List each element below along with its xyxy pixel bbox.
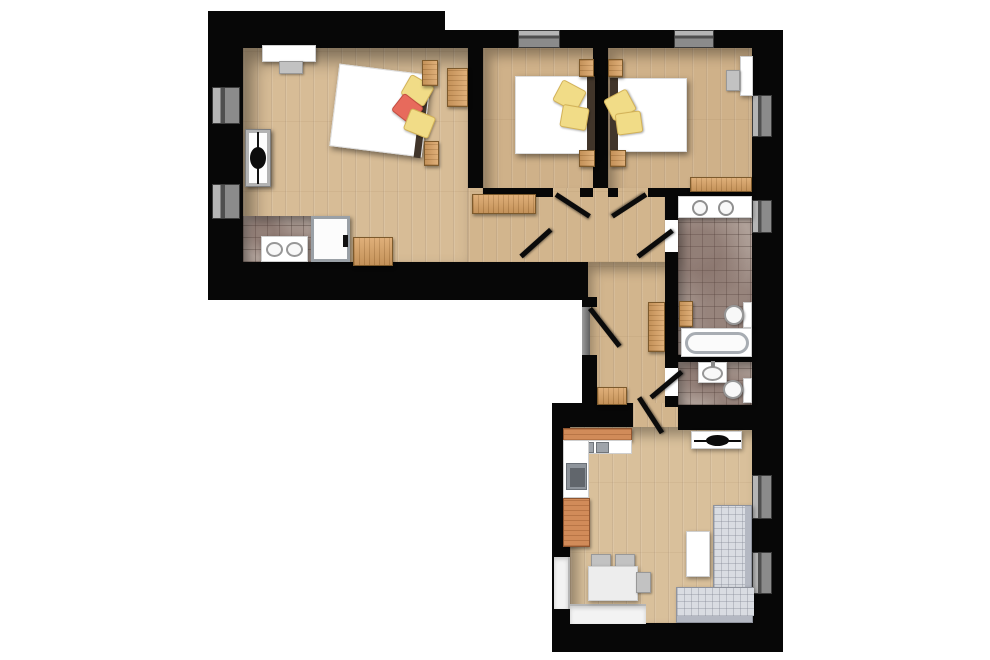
cooktop-burner-2	[596, 442, 609, 453]
wall-bottom-upper-wing	[208, 262, 588, 300]
nightstand-left-top	[422, 60, 438, 86]
wall-bathroom-left-b	[665, 252, 678, 362]
pillow-right-2	[615, 110, 644, 135]
bathtub	[685, 332, 749, 354]
pillow-middle-2	[559, 104, 590, 131]
sofa-right-section	[713, 505, 752, 598]
wall-divider-left-middle	[468, 30, 483, 188]
desk-right-bedroom	[740, 56, 753, 96]
desk-left-bedroom	[262, 45, 316, 62]
entrance-threshold	[582, 307, 590, 355]
nightstand-middle-bottom	[579, 150, 595, 167]
kitchen-sink-basin	[570, 468, 585, 487]
fireplace-stove-living	[691, 431, 742, 449]
wall-top-left	[208, 11, 445, 48]
window-right-living-lower	[752, 552, 772, 594]
shower-cabin	[311, 216, 350, 262]
wall-bedroom-right-bottom-a	[608, 188, 618, 197]
sink-main-2	[718, 200, 734, 216]
wood-stove-left-bedroom	[245, 129, 271, 187]
sink-ensuite-2	[286, 242, 303, 257]
nightstand-right-bottom	[610, 150, 626, 167]
window-left-lower	[212, 184, 240, 219]
window-left-upper	[212, 87, 240, 124]
wall-bathroom-left-a	[665, 196, 678, 220]
toilet-wc-tank	[743, 378, 752, 403]
wall-living-bottom	[552, 623, 783, 652]
wall-corridor-left-a	[582, 297, 597, 307]
cabinet-corridor-tall	[648, 302, 665, 352]
sofa-bottom-section	[676, 587, 753, 623]
dining-chair-3	[636, 572, 651, 593]
vanity-main-bathroom	[678, 196, 752, 218]
wall-corridor-left-b	[582, 355, 597, 407]
wall-bedroom-middle-bottom-stub	[580, 188, 593, 197]
sink-ensuite-1	[266, 242, 283, 257]
fireplace-lens	[706, 435, 729, 446]
dining-table	[588, 566, 638, 601]
kitchen-counter-left	[563, 498, 590, 547]
cabinet-ensuite	[353, 237, 393, 266]
wall-divider-middle-right	[593, 48, 608, 188]
desk-chair-right-bedroom	[726, 70, 740, 91]
kitchen-worktop-left	[563, 440, 589, 498]
shower-door-hinge	[343, 235, 348, 247]
wardrobe-left-bedroom	[447, 68, 468, 107]
sofa-right-seat	[714, 506, 745, 599]
window-bottom-dining	[570, 604, 646, 624]
cabinet-corridor-low	[597, 387, 627, 405]
bathtub-surround	[681, 328, 752, 357]
washbasin-wc-faucet	[711, 361, 715, 367]
wall-wc-bottom	[678, 405, 752, 430]
toilet-main-tank	[743, 302, 752, 328]
window-right-bedroom	[752, 95, 772, 137]
nightstand-middle-top	[579, 59, 594, 77]
toilet-main-bowl	[724, 305, 744, 325]
stove-lens	[250, 147, 266, 169]
sofa-bottom-seat	[677, 588, 754, 616]
desk-chair-left-bedroom	[279, 61, 303, 74]
nightstand-left-bottom	[424, 141, 439, 166]
coffee-table	[686, 531, 710, 577]
nightstand-right-top	[608, 59, 623, 77]
wall-wc-left-a	[665, 362, 678, 368]
washbasin-wc	[698, 362, 727, 383]
toilet-wc-bowl	[723, 380, 743, 399]
window-top-middle-bedroom	[518, 30, 560, 48]
bench-right-bedroom	[690, 177, 752, 192]
washbasin-wc-bowl	[702, 366, 723, 381]
sink-main-1	[692, 200, 708, 216]
window-right-living-upper	[752, 475, 772, 519]
vanity-ensuite	[261, 236, 308, 262]
kitchen-sink	[566, 463, 587, 490]
wall-wc-left-b	[665, 396, 678, 407]
window-left-dining	[554, 557, 570, 609]
window-right-bathroom	[752, 200, 772, 233]
shelf-main-bathroom	[679, 301, 693, 327]
window-top-right-bedroom	[674, 30, 714, 48]
floor-plan	[0, 0, 990, 660]
bench-hallway	[472, 194, 536, 214]
